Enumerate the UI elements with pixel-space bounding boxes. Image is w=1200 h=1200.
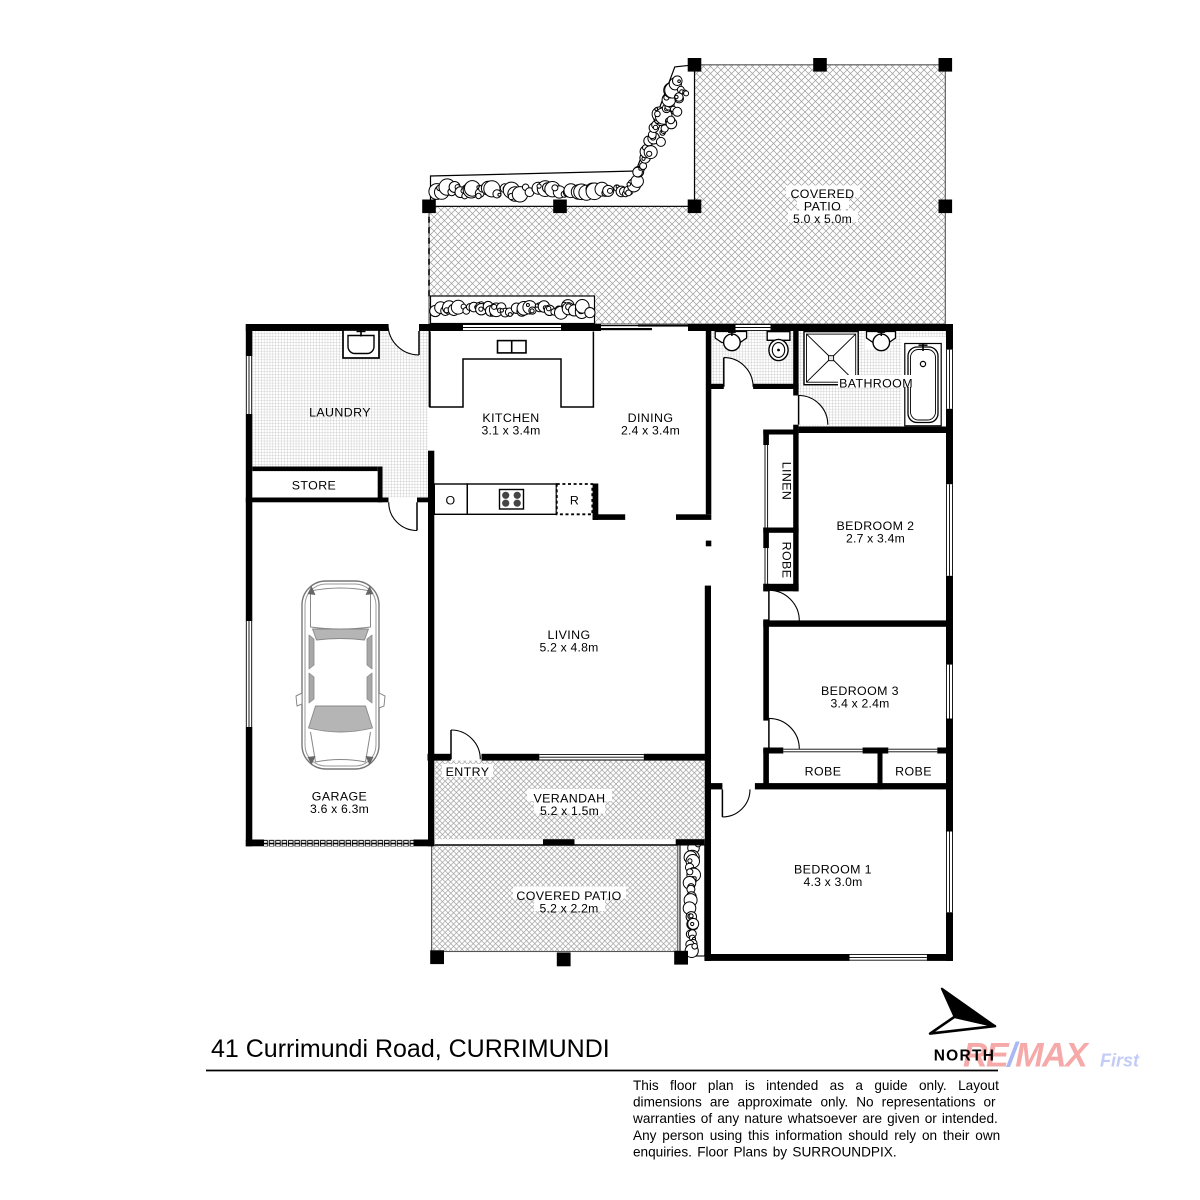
svg-text:STORE: STORE: [292, 479, 336, 493]
svg-text:O: O: [445, 494, 455, 508]
svg-text:This floor plan is intended as: This floor plan is intended as a guide o…: [633, 1078, 999, 1093]
svg-text:LAUNDRY: LAUNDRY: [309, 406, 371, 420]
svg-text:2.4 x 3.4m: 2.4 x 3.4m: [621, 424, 680, 438]
svg-text:5.0 x 5.0m: 5.0 x 5.0m: [793, 212, 852, 226]
svg-text:First: First: [1100, 1051, 1140, 1071]
svg-text:5.2 x 1.5m: 5.2 x 1.5m: [540, 804, 599, 818]
svg-text:ROBE: ROBE: [805, 765, 842, 779]
svg-text:dimensions are approximate onl: dimensions are approximate only. No repr…: [633, 1095, 996, 1110]
svg-text:5.2 x 4.8m: 5.2 x 4.8m: [540, 641, 599, 655]
svg-text:ENTRY: ENTRY: [446, 765, 490, 779]
svg-text:5.2 x 2.2m: 5.2 x 2.2m: [540, 902, 599, 916]
svg-text:Any person using this informat: Any person using this information should…: [633, 1128, 1000, 1143]
svg-text:ROBE: ROBE: [780, 542, 794, 579]
svg-text:2.7 x 3.4m: 2.7 x 3.4m: [846, 532, 905, 546]
svg-text:LINEN: LINEN: [780, 462, 794, 501]
svg-text:warranties of any nature whats: warranties of any nature whatsoever are …: [632, 1111, 998, 1126]
svg-text:3.1 x 3.4m: 3.1 x 3.4m: [482, 424, 541, 438]
svg-text:R: R: [570, 494, 579, 508]
svg-text:ROBE: ROBE: [895, 765, 932, 779]
svg-text:3.4 x 2.4m: 3.4 x 2.4m: [831, 697, 890, 711]
svg-text:BATHROOM: BATHROOM: [839, 377, 913, 391]
svg-text:41 Currimundi Road, CURRIMUNDI: 41 Currimundi Road, CURRIMUNDI: [211, 1035, 610, 1063]
svg-text:NORTH: NORTH: [934, 1048, 996, 1065]
svg-text:3.6 x 6.3m: 3.6 x 6.3m: [310, 802, 369, 816]
svg-text:enquiries. Floor Plans by SURR: enquiries. Floor Plans by SURROUNDPIX.: [633, 1144, 897, 1159]
svg-text:4.3 x 3.0m: 4.3 x 3.0m: [804, 875, 863, 889]
